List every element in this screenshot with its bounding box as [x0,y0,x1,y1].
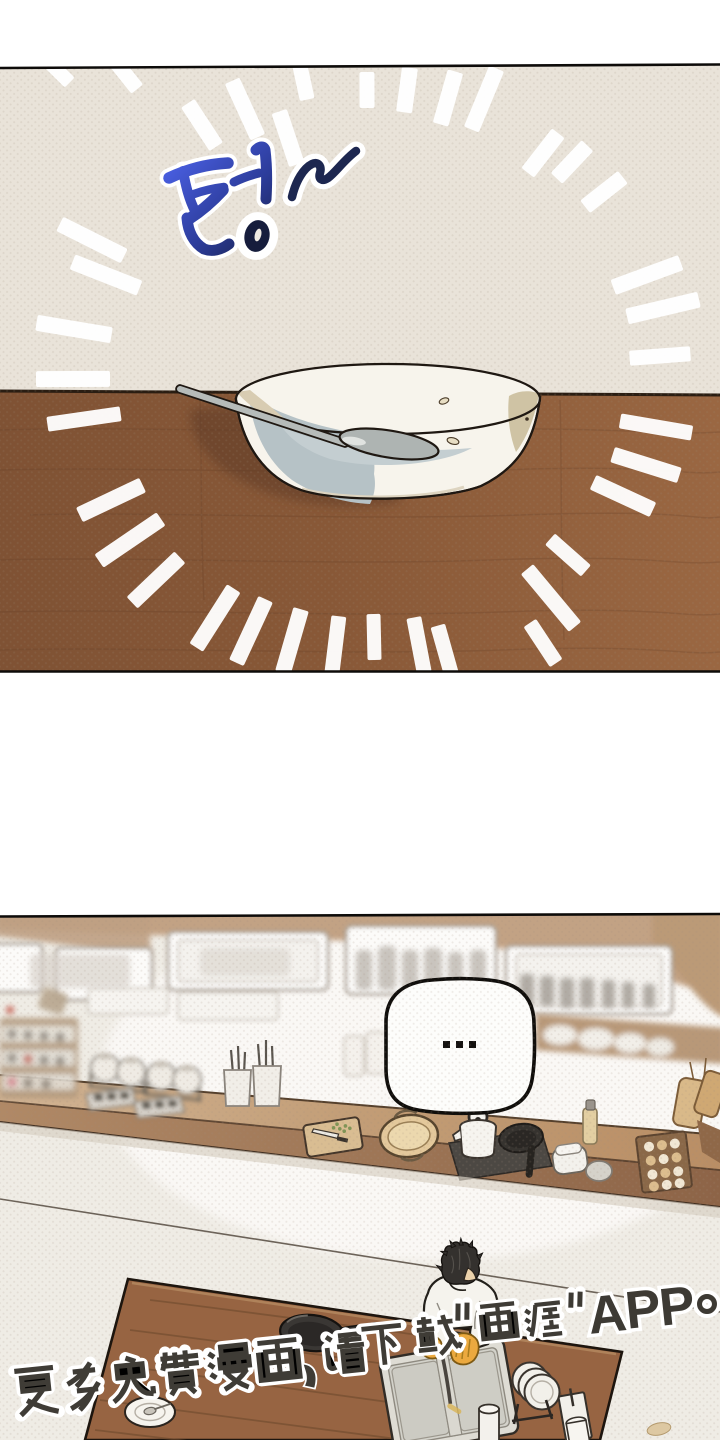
svg-text:P: P [656,1275,697,1337]
